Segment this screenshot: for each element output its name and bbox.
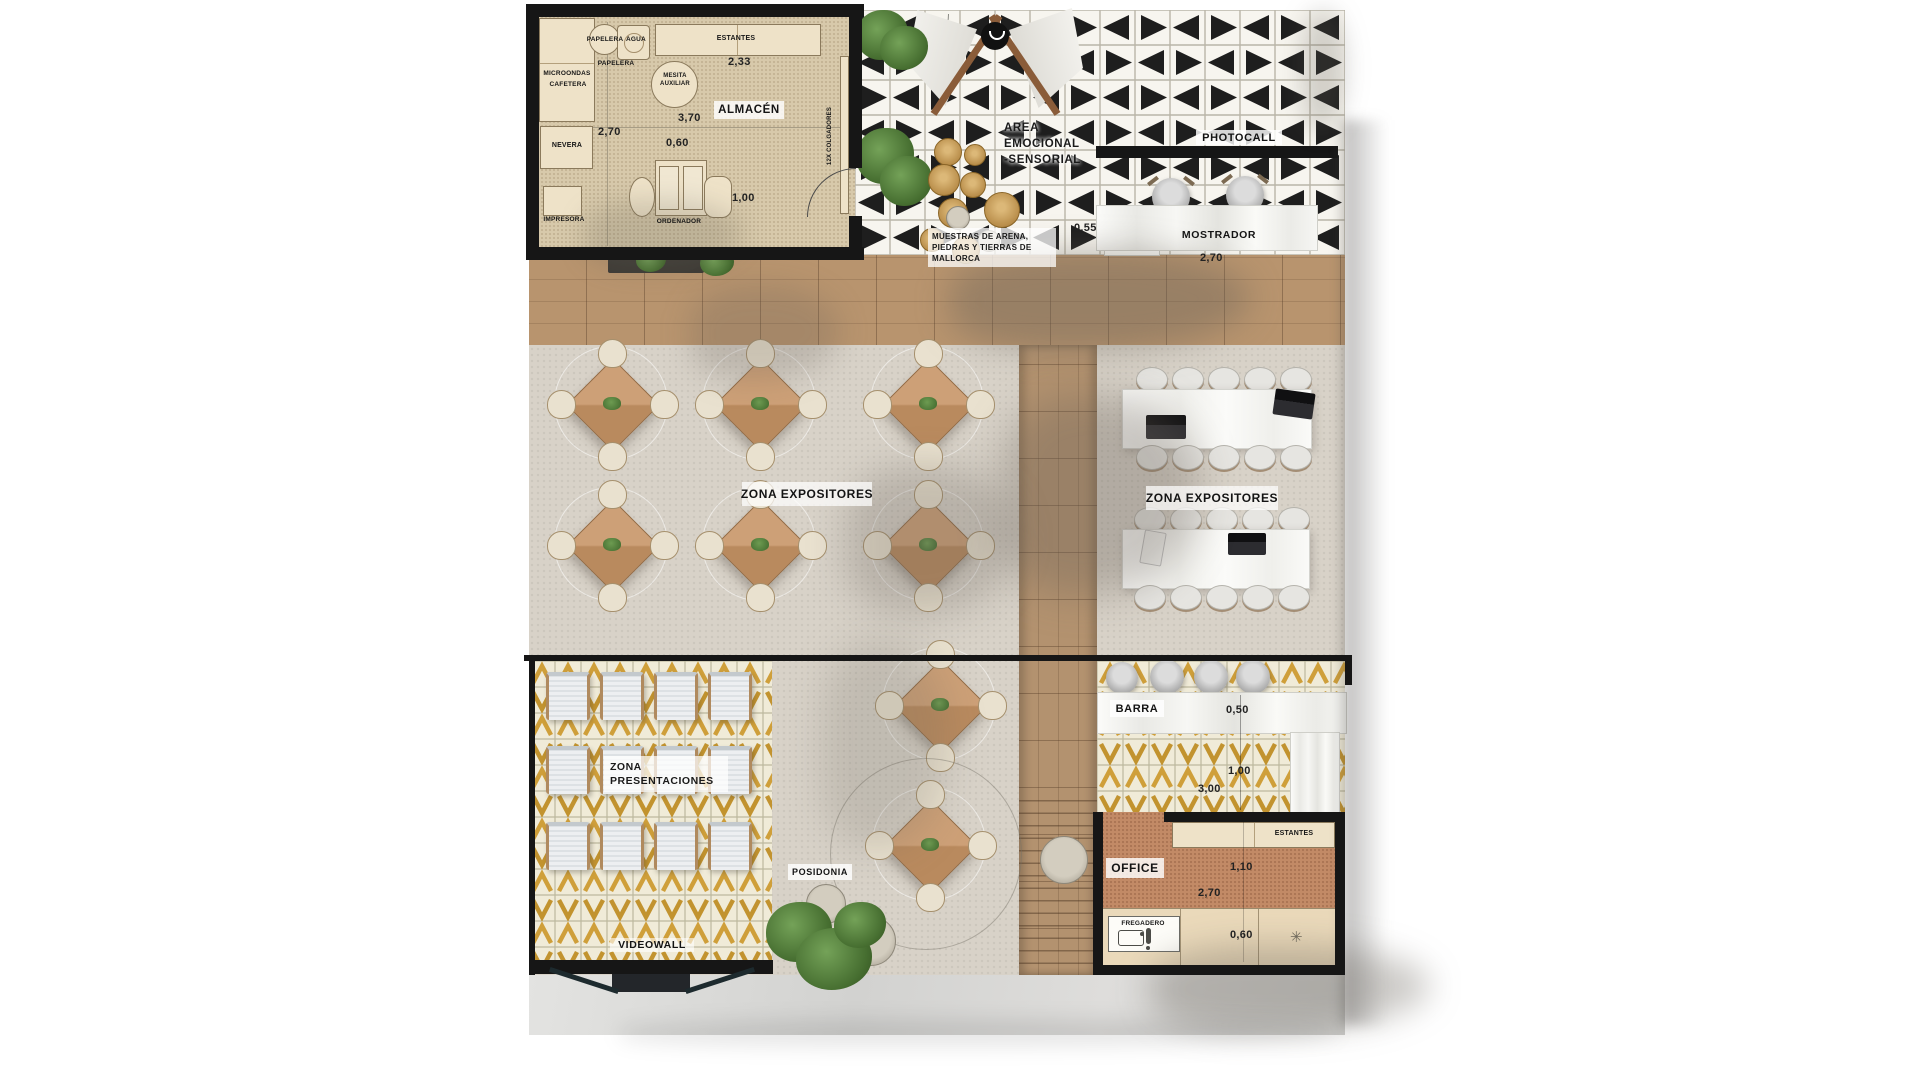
exhibitor-table-group [858, 475, 998, 615]
dim-sensorial: 0,55 [1074, 222, 1097, 234]
sample-basket [964, 144, 986, 166]
sun-icon: ✳ [1290, 928, 1303, 946]
almacen-wall-right-upper [849, 4, 862, 168]
desk-chair-right [704, 176, 732, 218]
muestras-line3: MALLORCA [932, 253, 1052, 264]
mid-wall-step [1345, 655, 1352, 685]
sample-basket [934, 138, 962, 166]
dim-office-b: 2,70 [1198, 887, 1221, 899]
cafetera-label: CAFETERA [542, 81, 594, 88]
impresora-label: IMPRESORA [536, 216, 592, 223]
walkway-stairs [1019, 800, 1097, 975]
logo-mark [989, 31, 1005, 40]
expositores-right-title: ZONA EXPOSITORES [1146, 486, 1278, 510]
muestras-line1: MUESTRAS DE ARENA, [932, 231, 1052, 242]
videowall-stand [612, 974, 690, 992]
dim-barra-c: 3,00 [1198, 783, 1221, 795]
dim-mesa: 0,60 [666, 137, 689, 149]
office-wall-left [1093, 812, 1103, 975]
desk-chair-left [629, 177, 655, 217]
desk-inner-right [683, 166, 703, 210]
muestras-line2: PIEDRAS Y TIERRAS DE [932, 242, 1052, 253]
counter-divider [540, 63, 594, 64]
almacen-wall-top [526, 4, 864, 17]
mid-wall [524, 655, 1352, 661]
presentation-chair [654, 822, 698, 870]
presentation-chair [654, 672, 698, 720]
mesita-label-1: MESITA [653, 73, 697, 79]
papelera-label: PAPELERA [592, 60, 640, 67]
presentaciones-line1: ZONA [610, 760, 722, 774]
left-wall-lower [529, 657, 535, 975]
presentaciones-line2: PRESENTACIONES [610, 774, 722, 788]
presentation-chair [708, 672, 752, 720]
sample-plate [946, 206, 970, 230]
videowall-title: VIDEOWALL [610, 938, 694, 952]
office-wall-top [1164, 812, 1345, 822]
dim-mostrador: 2,70 [1200, 252, 1223, 264]
dim-barra-a: 0,50 [1226, 704, 1249, 716]
logo-badge [981, 22, 1009, 50]
office-estantes-label: ESTANTES [1254, 830, 1334, 837]
photocall-wall [1096, 146, 1338, 158]
exhibitor-table-group [858, 334, 998, 474]
laptop [1146, 415, 1186, 439]
laptop [1228, 533, 1266, 555]
barra-title: BARRA [1110, 700, 1164, 717]
almacen-title: ALMACÉN [714, 101, 784, 119]
dim-estantes: 2,33 [728, 56, 751, 68]
almacen-wall-bottom [526, 247, 864, 260]
muestras-label: MUESTRAS DE ARENA, PIEDRAS Y TIERRAS DE … [928, 228, 1056, 267]
photocall-title: PHOTOCALL [1196, 130, 1282, 145]
microondas-label: MICROONDAS [538, 70, 596, 77]
dim-barra-b: 1,00 [1228, 765, 1251, 777]
mesita-label-2: AUXILIAR [653, 81, 697, 87]
sink-faucet [1146, 928, 1151, 944]
presentation-chair [546, 746, 590, 794]
sensorial-title-line2: EMOCIONAL [1004, 136, 1081, 152]
presentation-chair [708, 822, 752, 870]
exhibitor-table-group [542, 334, 682, 474]
dim-puerta: 1,00 [732, 192, 755, 204]
hammock-structure [905, 8, 1085, 120]
meeting-table-group-1 [1122, 367, 1312, 469]
agua-label: AGUA [621, 36, 651, 43]
posidonia-title: POSIDONIA [788, 864, 852, 880]
exhibitor-table-group [542, 475, 682, 615]
office-guide-v [1243, 822, 1244, 962]
sample-basket [984, 192, 1020, 228]
pebble-pot [1040, 836, 1088, 884]
laptop [1272, 388, 1315, 419]
estantes-label: ESTANTES [703, 35, 769, 42]
office-counter-div2 [1258, 909, 1259, 965]
floor-plan-canvas: ALMACÉN PAPELERA AGUA PAPELERA MICROONDA… [0, 0, 1920, 1080]
sample-basket [960, 172, 986, 198]
office-title: OFFICE [1106, 858, 1164, 878]
meeting-table-group-2 [1120, 507, 1310, 609]
dim-office-a: 1,10 [1230, 861, 1253, 873]
bar-stool [1106, 662, 1138, 694]
desk-inner-left [659, 166, 679, 210]
ordenador-label: ORDENADOR [644, 218, 714, 225]
office-wall-right [1335, 812, 1345, 975]
bar-stool [1236, 660, 1270, 694]
sink-drain [1146, 946, 1150, 950]
dim-alto: 2,70 [598, 126, 621, 138]
sink-knob [1140, 932, 1144, 936]
sensorial-title-line1: AREA [1004, 120, 1081, 136]
colgadores-label: 12X COLGADORES [827, 81, 833, 191]
printer [543, 186, 582, 216]
exhibitor-table-group [690, 334, 830, 474]
presentaciones-title: ZONA PRESENTACIONES [604, 756, 728, 792]
expositores-left-title: ZONA EXPOSITORES [742, 482, 872, 506]
sample-basket [928, 164, 960, 196]
office-wall-bottom [1093, 965, 1345, 975]
presentation-chair [546, 822, 590, 870]
sensorial-title: AREA EMOCIONAL -SENSORIAL [1004, 120, 1081, 168]
office-counter-div1 [1180, 909, 1181, 965]
presentation-chair [600, 672, 644, 720]
dim-office-c: 0,60 [1230, 929, 1253, 941]
sensorial-title-line3: -SENSORIAL [1004, 152, 1081, 168]
nevera-label: NEVERA [545, 142, 589, 149]
bar-stool [1150, 660, 1184, 694]
bar-stool [1194, 660, 1228, 694]
fregadero-label: FREGADERO [1110, 920, 1176, 927]
dim-ancho: 3,70 [678, 112, 701, 124]
mostrador-title: MOSTRADOR [1178, 228, 1260, 242]
bar-counter-return [1290, 732, 1340, 814]
presentation-chair [546, 672, 590, 720]
almacen-wall-right-lower [849, 216, 862, 260]
presentation-chair [600, 822, 644, 870]
